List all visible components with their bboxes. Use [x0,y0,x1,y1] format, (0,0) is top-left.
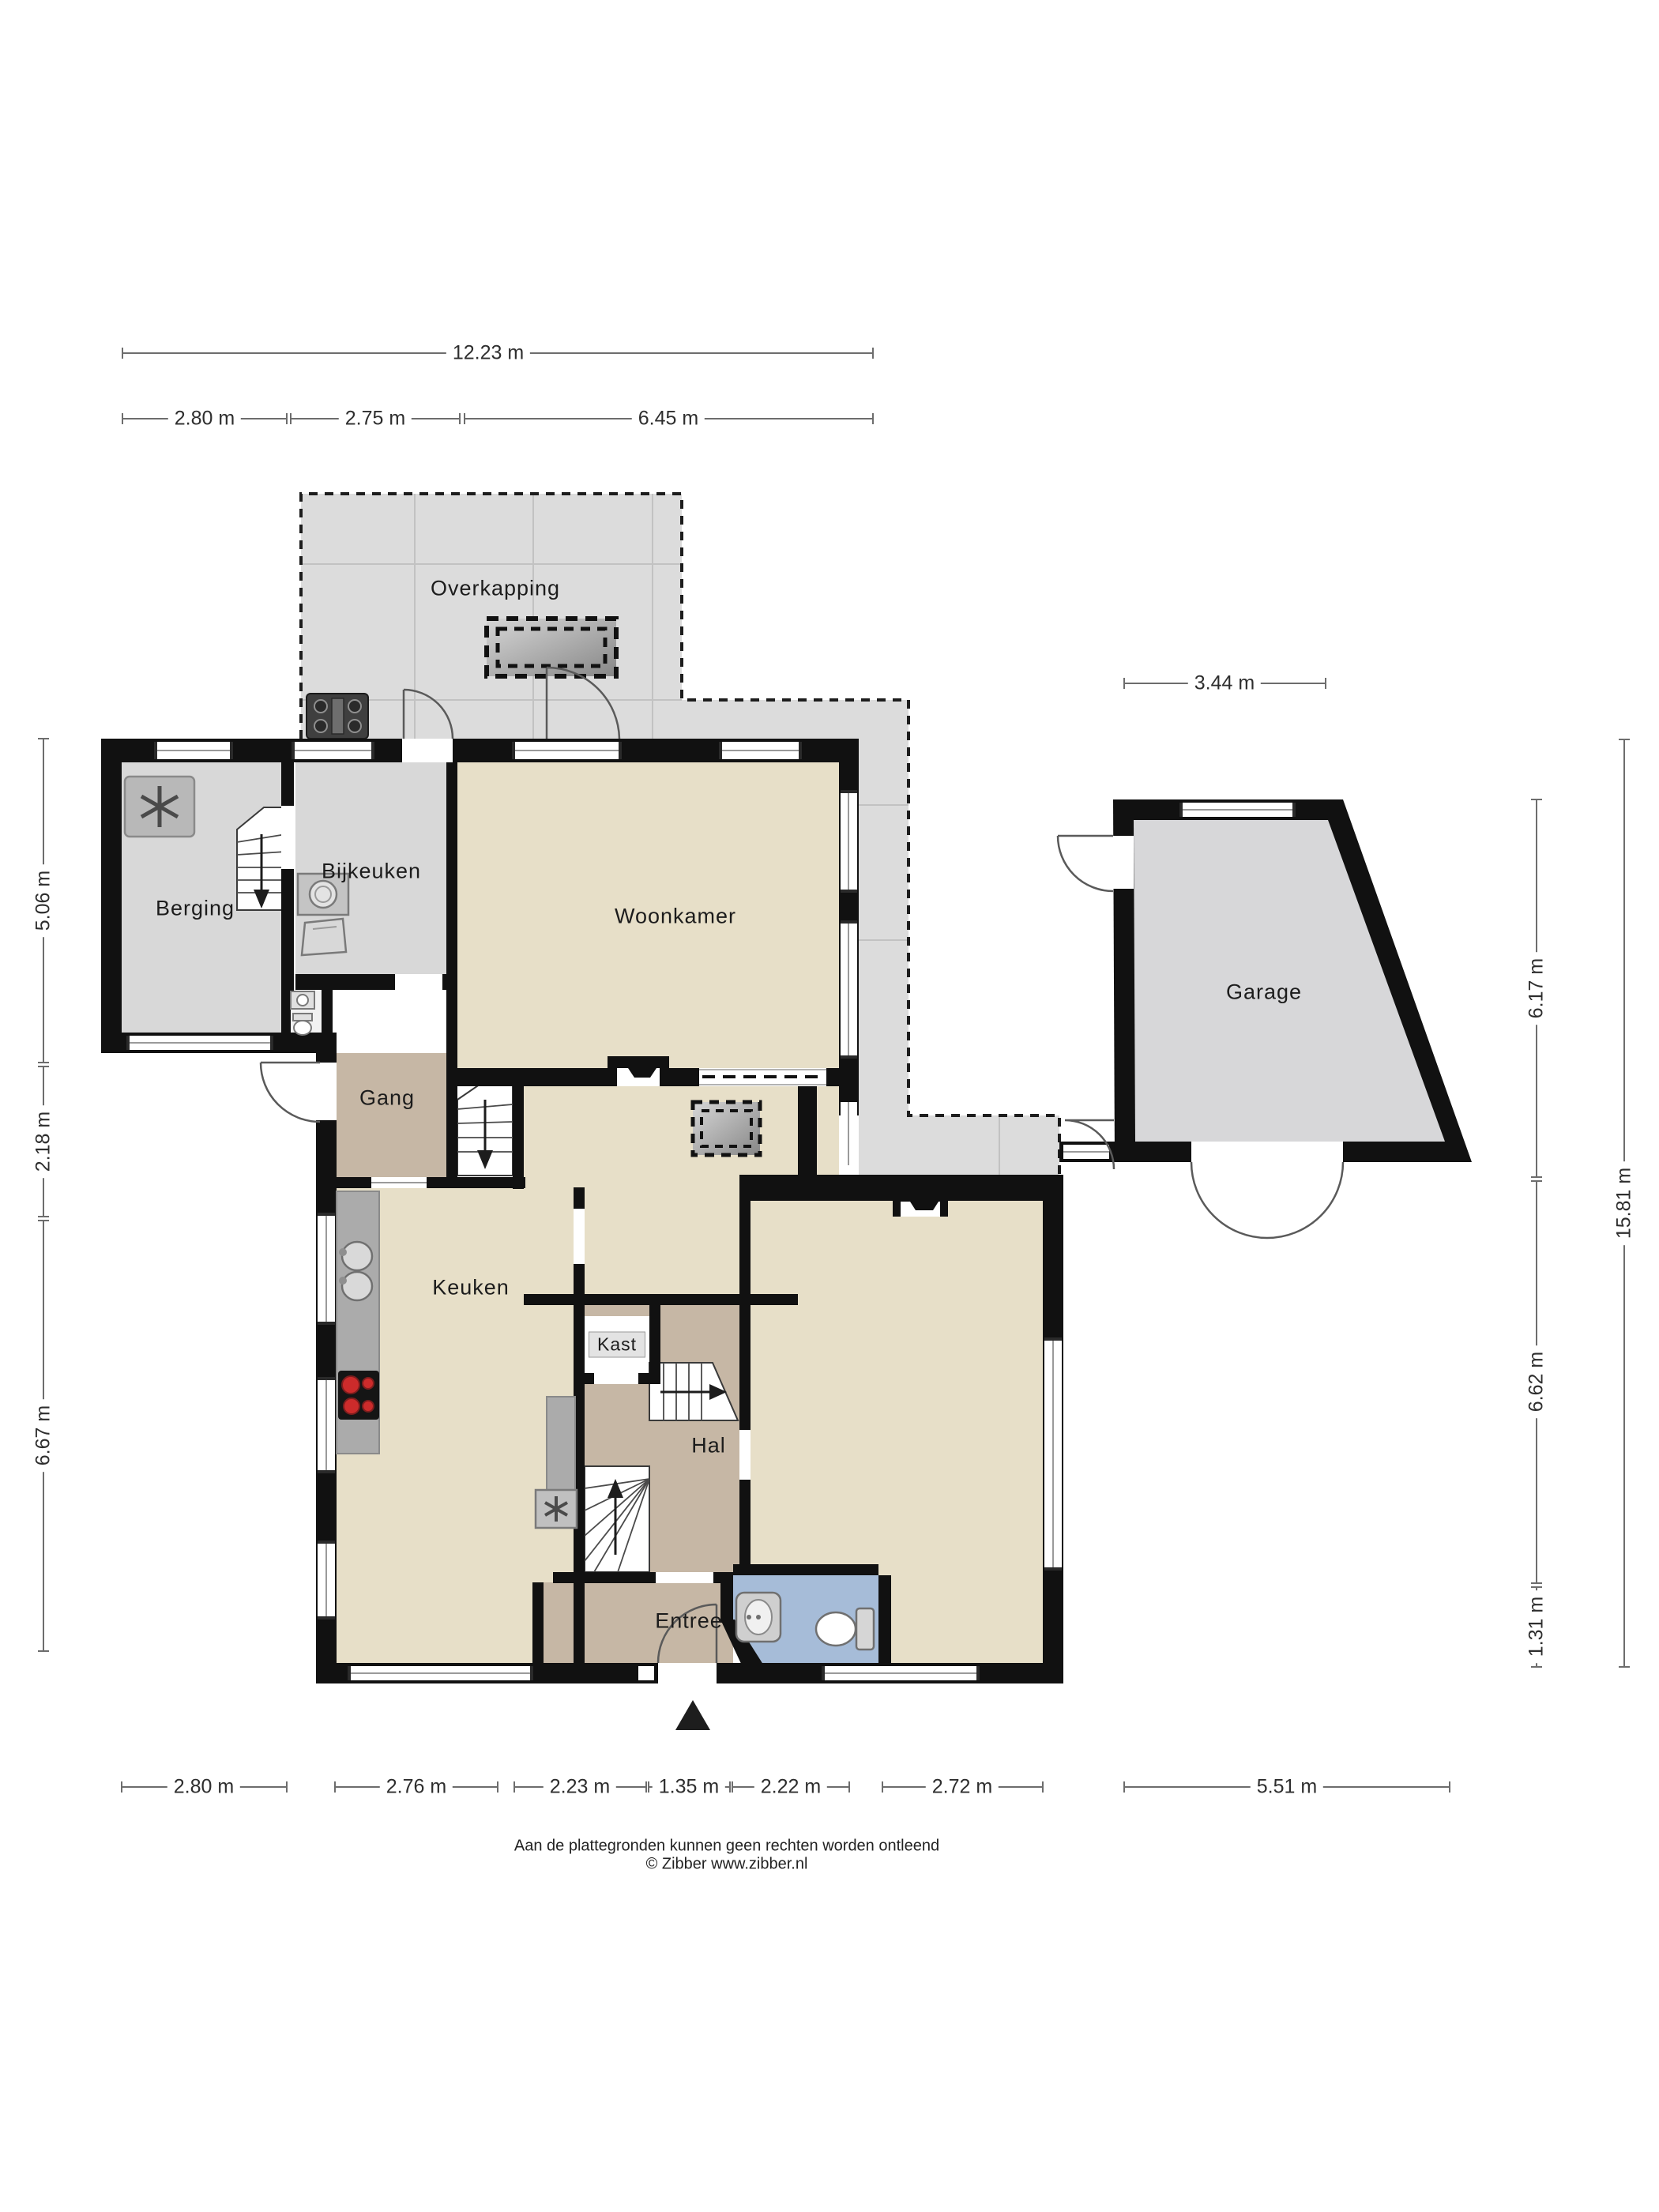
room-label-berging: Berging [156,897,235,921]
dim-bottom-5: 2.22 m [754,1776,827,1799]
dim-bottom-2: 2.76 m [380,1776,453,1799]
room-gang [335,1053,446,1179]
dim-bottom-3: 2.23 m [544,1776,616,1799]
room-label-overkapping: Overkapping [431,577,560,601]
room-label-keuken: Keuken [432,1276,510,1300]
dim-right-2: 6.62 m [1525,1345,1548,1418]
dim-left-1: 5.06 m [32,864,55,937]
room-label-woonkamer: Woonkamer [615,905,736,929]
washbasin-icon [736,1593,781,1642]
toilet-icon [816,1608,874,1650]
dim-right-total: 15.81 m [1613,1161,1636,1245]
room-label-hal: Hal [691,1434,726,1458]
cooktop-icon [338,1371,379,1420]
entrance-arrow-icon [675,1700,710,1730]
room-label-bijkeuken: Bijkeuken [322,860,421,884]
room-label-entree: Entree [655,1609,723,1634]
room-label-garage: Garage [1226,980,1302,1005]
stairs-berging [237,807,286,910]
skylight-icon [693,1102,760,1155]
dim-right-1: 6.17 m [1525,952,1548,1025]
stairs-gang [457,1081,513,1176]
dim-left-3: 6.67 m [32,1399,55,1472]
dim-top-1: 2.80 m [168,408,241,431]
floorplan-drawing [0,0,1659,2212]
dim-bottom-6: 2.72 m [926,1776,999,1799]
fireplace [893,1191,948,1217]
dim-top-2: 2.75 m [339,408,412,431]
wc-fixtures [291,991,314,1035]
dim-left-2: 2.18 m [32,1105,55,1178]
ventilation-unit-icon [536,1490,577,1528]
dim-top-3: 6.45 m [632,408,705,431]
dim-top-total: 12.23 m [446,342,530,365]
heat-pump-icon [125,777,194,837]
floorplan-page: { "page": { "footer": { "line1": "Aan de… [0,0,1659,2212]
dim-bottom-1: 2.80 m [167,1776,240,1799]
stairs-hal-winder [585,1466,649,1572]
dim-garage-width: 3.44 m [1188,672,1261,695]
dim-bottom-4: 1.35 m [653,1776,725,1799]
dim-bottom-7: 5.51 m [1251,1776,1323,1799]
room-label-gang: Gang [359,1086,415,1111]
dim-right-3: 1.31 m [1525,1590,1548,1663]
open-connection [699,1068,826,1086]
outdoor-grill-icon [307,694,368,739]
disclaimer-text: Aan de plattegronden kunnen geen rechten… [514,1838,939,1856]
fireplace [608,1056,669,1086]
room-label-kast: Kast [589,1332,645,1358]
copyright-text: © Zibber www.zibber.nl [646,1856,808,1874]
